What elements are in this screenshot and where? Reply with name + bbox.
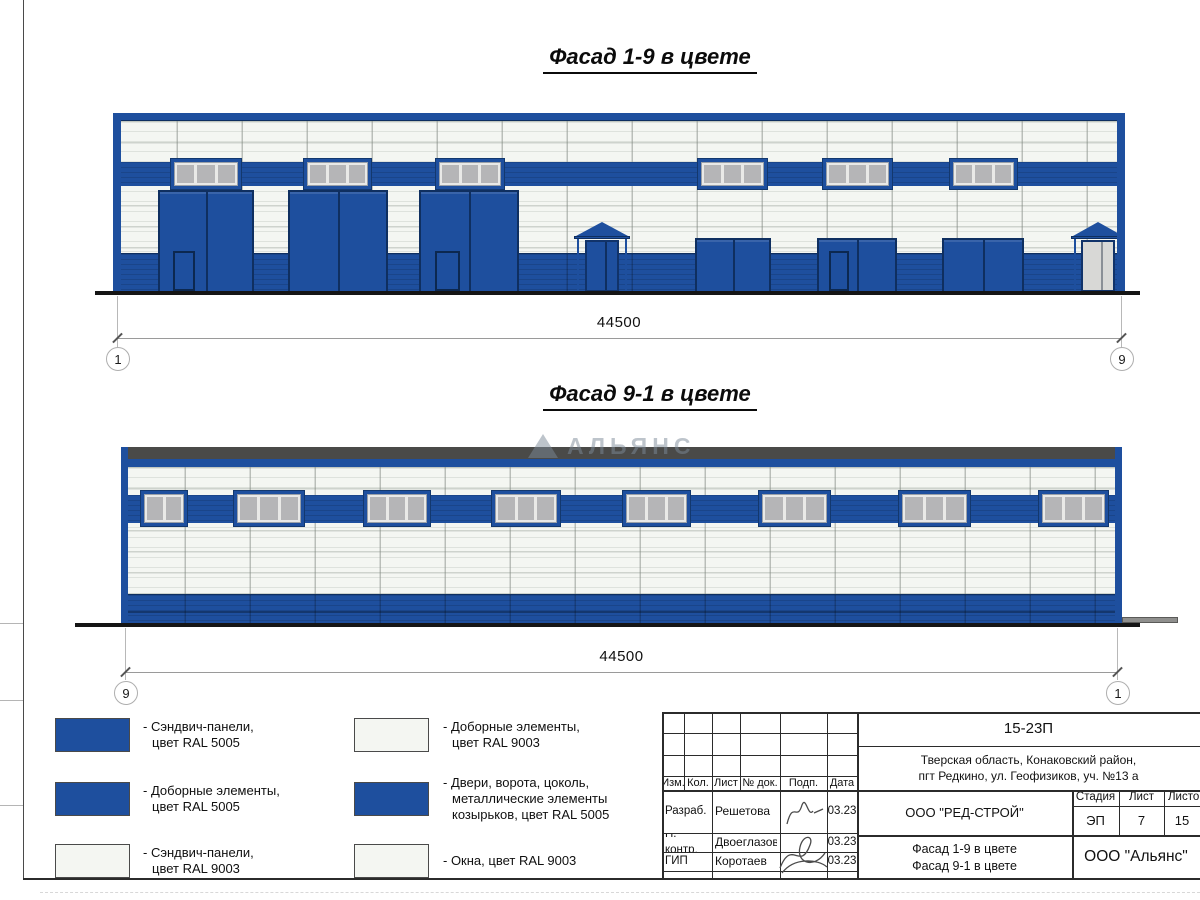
window-pane	[166, 497, 182, 520]
window-pane	[946, 497, 964, 520]
stamp-line	[662, 878, 1200, 880]
window-frame	[762, 494, 827, 523]
legend-label-line: - Сэндвич-панели,	[143, 719, 254, 735]
gate	[419, 190, 519, 293]
extension-line	[1121, 296, 1122, 348]
window-frame	[701, 162, 764, 186]
col-doc: № док.	[740, 776, 780, 790]
design-company: ООО "РЕД-СТРОЙ"	[857, 790, 1072, 835]
legend-label: - Сэндвич-панели,цвет RAL 5005	[143, 719, 254, 751]
window-pane	[281, 497, 298, 520]
legend-label-line: цвет RAL 5005	[152, 735, 254, 751]
stamp-line	[684, 712, 685, 790]
legend-label-line: - Доборные элементы,	[443, 719, 580, 735]
entrance-post	[577, 239, 579, 292]
project-address: Тверская область, Конаковский район, пгт…	[857, 746, 1200, 790]
col-izm: Изм.	[662, 776, 684, 790]
window-pane	[498, 497, 515, 520]
gate	[288, 190, 388, 293]
stamp-line	[712, 712, 713, 880]
window-frame	[902, 494, 967, 523]
ground-line	[75, 623, 1140, 627]
window	[491, 490, 561, 527]
row-name: Решетова	[715, 790, 777, 833]
legend-label: - Двери, ворота, цоколь,металлические эл…	[443, 775, 609, 823]
watermark-triangle-icon	[528, 434, 558, 458]
project-code: 15-23П	[857, 712, 1200, 746]
gate-leaf-divider	[338, 192, 340, 291]
window-frame	[144, 494, 184, 523]
gate	[158, 190, 254, 293]
window-pane	[905, 497, 923, 520]
window-frame	[307, 162, 368, 186]
legend-label: - Сэндвич-панели,цвет RAL 9003	[143, 845, 254, 877]
window-frame	[237, 494, 301, 523]
window-pane	[349, 165, 365, 183]
window	[758, 490, 831, 527]
margin-divider	[0, 700, 23, 701]
sheet-value: 7	[1119, 806, 1164, 835]
building-right-edge	[1117, 113, 1125, 293]
window	[303, 158, 372, 190]
entrance-post	[625, 239, 627, 292]
window-pane	[786, 497, 804, 520]
legend-label-line: козырьков, цвет RAL 5005	[452, 807, 609, 823]
stamp-line	[1119, 790, 1120, 835]
legend-label-line: - Окна, цвет RAL 9003	[443, 853, 576, 869]
signature	[774, 830, 832, 878]
grid-marker-9: 9	[114, 681, 138, 705]
window	[170, 158, 242, 190]
window	[140, 490, 188, 527]
parapet-blue-strip	[121, 459, 1122, 467]
legend-label-line: - Доборные элементы,	[143, 783, 280, 799]
stamp-line	[1164, 790, 1165, 835]
stamp-line	[662, 712, 664, 880]
plinth-band	[121, 594, 1122, 626]
window	[898, 490, 971, 527]
legend-label-line: металлические элементы	[452, 791, 609, 807]
gate-leaf-divider	[857, 240, 859, 291]
window-pane	[218, 165, 235, 183]
gate	[695, 238, 771, 293]
entrance-canopy	[576, 222, 628, 236]
stamp-line	[857, 835, 1200, 837]
title-block: 15-23П Тверская область, Конаковский рай…	[662, 712, 1200, 880]
window-pane	[462, 165, 479, 183]
stage-label: Стадия	[1072, 790, 1119, 806]
window	[1038, 490, 1109, 527]
gate-leaf-divider	[469, 192, 471, 291]
window	[622, 490, 691, 527]
window-pane	[389, 497, 405, 520]
window-pane	[518, 497, 535, 520]
row-role: Н. контр.	[665, 833, 711, 852]
window-pane	[1065, 497, 1082, 520]
stamp-line	[857, 712, 859, 880]
window-frame	[495, 494, 557, 523]
sheets-label: Листов	[1168, 790, 1200, 806]
facade-19-title: Фасад 1-9 в цвете	[100, 44, 1200, 70]
legend-swatch	[354, 844, 429, 878]
legend-swatch	[354, 782, 429, 816]
col-data: Дата	[827, 776, 857, 790]
dimension-value: 44500	[125, 648, 1118, 665]
building-top-edge	[113, 113, 1125, 121]
window	[363, 490, 431, 527]
entrance-post	[1074, 239, 1076, 292]
sheet-label: Лист	[1119, 790, 1164, 806]
facade-19-title-text: Фасад 1-9 в цвете	[543, 44, 757, 74]
window-pane	[370, 497, 386, 520]
grid-marker-1: 1	[106, 347, 130, 371]
legend-swatch	[55, 844, 130, 878]
window-pane	[648, 497, 664, 520]
legend-swatch	[55, 718, 130, 752]
window	[435, 158, 505, 190]
col-podp: Подп.	[780, 776, 827, 790]
entrance-canopy	[1073, 222, 1123, 236]
window-pane	[849, 165, 866, 183]
gate-wicket-door	[435, 251, 460, 291]
drawing-title: Фасад 1-9 в цвете Фасад 9-1 в цвете	[857, 835, 1072, 880]
window-pane	[537, 497, 554, 520]
facade-91-title-text: Фасад 9-1 в цвете	[543, 381, 757, 411]
stamp-line	[740, 712, 741, 790]
row-role: ГИП	[665, 852, 711, 871]
legend-label-line: - Сэндвич-панели,	[143, 845, 254, 861]
watermark: АЛЬЯНС	[528, 434, 695, 458]
sheets-value: 15	[1164, 806, 1200, 835]
stamp-line	[1072, 806, 1200, 807]
entrance-door-leaf-divider	[605, 242, 607, 290]
legend-label-line: - Двери, ворота, цоколь,	[443, 775, 609, 791]
col-kol: Кол.	[684, 776, 712, 790]
window-frame	[439, 162, 501, 186]
window-pane	[765, 497, 783, 520]
entrance-door	[1081, 240, 1115, 292]
gate-leaf-divider	[733, 240, 735, 291]
window-pane	[329, 165, 345, 183]
window-pane	[704, 165, 721, 183]
drawing-sheet: Фасад 1-9 в цвете Фасад 9-1 в цвете АЛЬЯ…	[0, 0, 1200, 900]
legend-swatch	[354, 718, 429, 752]
building-left-edge	[121, 447, 128, 626]
stage-value: ЭП	[1072, 806, 1119, 835]
col-list: Лист	[712, 776, 740, 790]
window-pane	[408, 497, 424, 520]
facade-19-drawing	[113, 113, 1125, 293]
building-left-edge	[113, 113, 121, 293]
gate-wicket-door	[173, 251, 195, 291]
window	[233, 490, 305, 527]
window-pane	[724, 165, 741, 183]
window-pane	[310, 165, 326, 183]
window-pane	[147, 497, 163, 520]
window-pane	[668, 497, 684, 520]
window-frame	[367, 494, 427, 523]
watermark-text: АЛЬЯНС	[567, 435, 695, 458]
facade-91-drawing	[121, 444, 1122, 626]
row-role: Разраб.	[665, 790, 711, 833]
stamp-line	[857, 746, 1200, 747]
window-frame	[626, 494, 687, 523]
window-pane	[240, 497, 257, 520]
gate	[817, 238, 897, 293]
window-pane	[177, 165, 194, 183]
legend-label: - Окна, цвет RAL 9003	[443, 853, 576, 869]
dimension-value: 44500	[117, 314, 1121, 331]
stamp-line	[1072, 790, 1074, 880]
stamp-line	[662, 712, 1200, 714]
window-pane	[629, 497, 645, 520]
window-frame	[953, 162, 1014, 186]
row-date: 03.23	[827, 790, 857, 833]
ground-line	[95, 291, 1140, 295]
window-pane	[1085, 497, 1102, 520]
row-name: Двоеглазов	[715, 833, 777, 852]
signature	[782, 794, 826, 830]
entrance-door-leaf-divider	[1101, 242, 1103, 290]
dimension-line	[125, 672, 1118, 673]
window-pane	[869, 165, 886, 183]
window-pane	[744, 165, 761, 183]
grid-marker-9: 9	[1110, 347, 1134, 371]
entrance-canopy-eave	[574, 236, 630, 239]
window-pane	[197, 165, 214, 183]
margin-divider	[0, 623, 23, 624]
gate	[942, 238, 1024, 293]
window	[949, 158, 1018, 190]
plinth-joint-line	[121, 611, 1122, 613]
dimension-line	[117, 338, 1121, 339]
legend-swatch	[55, 782, 130, 816]
window-pane	[975, 165, 991, 183]
legend-label-line: цвет RAL 5005	[152, 799, 280, 815]
wall-panels	[121, 467, 1122, 594]
grid-marker-1: 1	[1106, 681, 1130, 705]
window-pane	[1045, 497, 1062, 520]
window-frame	[1042, 494, 1105, 523]
window-pane	[829, 165, 846, 183]
legend-label-line: цвет RAL 9003	[152, 861, 254, 877]
window-pane	[806, 497, 824, 520]
frame-left-line	[23, 0, 24, 880]
contractor-company: ООО "Альянс"	[1072, 835, 1200, 880]
legend-label: - Доборные элементы,цвет RAL 5005	[143, 783, 280, 815]
window-frame	[174, 162, 238, 186]
window-pane	[481, 165, 498, 183]
window-pane	[926, 497, 944, 520]
entrance-door	[585, 240, 619, 292]
facade-91-title: Фасад 9-1 в цвете	[100, 381, 1200, 407]
window-pane	[956, 165, 972, 183]
legend-label: - Доборные элементы,цвет RAL 9003	[443, 719, 580, 751]
window-frame	[826, 162, 889, 186]
gate-leaf-divider	[983, 240, 985, 291]
window	[697, 158, 768, 190]
gate-leaf-divider	[206, 192, 208, 291]
building-right-edge	[1115, 447, 1122, 626]
scan-artifact-line	[40, 892, 1200, 893]
gate-wicket-door	[829, 251, 849, 291]
legend-label-line: цвет RAL 9003	[452, 735, 580, 751]
margin-divider	[0, 805, 23, 806]
window-pane	[995, 165, 1011, 183]
window-pane	[260, 497, 277, 520]
row-name: Коротаев	[715, 852, 777, 871]
window	[822, 158, 893, 190]
window-pane	[442, 165, 459, 183]
